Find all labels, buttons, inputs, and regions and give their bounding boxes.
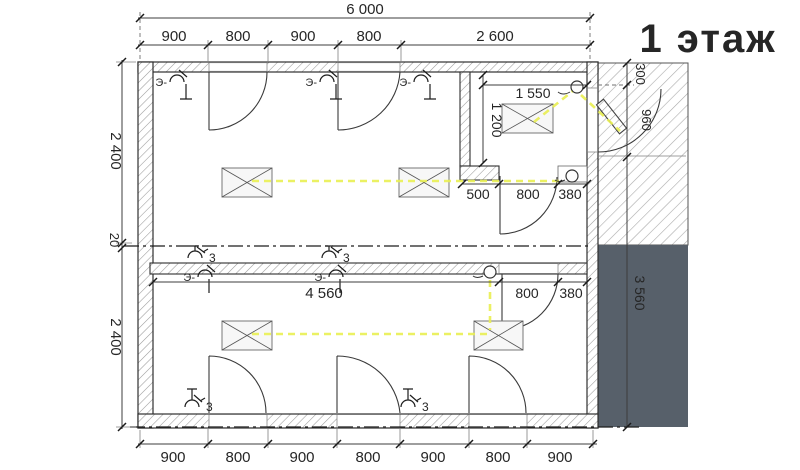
- dim-top-seg: 800: [356, 28, 381, 45]
- switch-symbol: Э-: [399, 70, 436, 99]
- ceiling-lights: [222, 104, 553, 350]
- lamp-hook-icon: [473, 276, 483, 278]
- dim-overall-width: 6 000: [346, 1, 384, 18]
- dim-bottom-seg: 900: [420, 449, 445, 466]
- door-top-1: [209, 72, 267, 130]
- opening-middle: [499, 264, 558, 274]
- switch-symbol: 3: [401, 389, 429, 414]
- ceiling-light: [399, 168, 449, 197]
- door-top-2: [338, 72, 400, 130]
- door-bottom-1: [209, 356, 266, 413]
- opening-bottom-1: [209, 415, 267, 428]
- lamp-point-icon: [566, 170, 578, 182]
- switch-symbol: 3: [188, 246, 216, 265]
- door-bottom-2: [337, 356, 400, 413]
- entry-porch-hatch: [598, 63, 688, 245]
- dim-tambour-depth: 1 200: [489, 102, 505, 137]
- wall-tambour-bottom: [460, 166, 499, 180]
- dim-entry-step: 800: [516, 186, 540, 202]
- dim-tambour-width: 1 550: [515, 85, 550, 101]
- switch-circuit-label: 3: [422, 400, 429, 414]
- ceiling-light: [502, 104, 553, 133]
- dim-right-side: 3 560: [632, 275, 648, 310]
- switch-circuit-label: 3: [206, 400, 213, 414]
- floor-plan-canvas: Э- Э- Э- 3 3 Э- Э- 3: [0, 0, 800, 470]
- switch-symbol: 3: [322, 246, 350, 265]
- lamp-hook-icon: [558, 92, 570, 94]
- dim-left-upper: 2 400: [107, 132, 124, 170]
- lamp-point-icon: [571, 81, 583, 93]
- dim-bottom-seg: 900: [160, 449, 185, 466]
- switch-circuit-label: 3: [209, 251, 216, 265]
- lamp-point-icon: [484, 266, 496, 278]
- wall-tambour-left: [460, 72, 470, 166]
- dim-hall: 380: [559, 285, 583, 301]
- dim-bottom-seg: 900: [289, 449, 314, 466]
- opening-top-1: [209, 63, 267, 72]
- door-bottom-3: [469, 356, 526, 413]
- dim-top-seg: 900: [290, 28, 315, 45]
- dim-top-seg: 900: [161, 28, 186, 45]
- floor-title: 1 этаж: [639, 17, 776, 61]
- door-tambour: [500, 176, 557, 234]
- ceiling-light: [222, 168, 272, 197]
- dim-left-gap: 20: [107, 233, 122, 247]
- extension-lines-dashed: [140, 12, 634, 85]
- dimension-lines: [122, 18, 627, 444]
- switch-symbol: Э-: [155, 70, 192, 99]
- opening-top-2: [338, 63, 400, 72]
- dim-bottom-seg: 800: [485, 449, 510, 466]
- dim-bottom-seg: 800: [225, 449, 250, 466]
- opening-bottom-2: [337, 415, 400, 428]
- dim-top-seg: 2 600: [476, 28, 514, 45]
- dim-bottom-seg: 800: [355, 449, 380, 466]
- dim-right-door: 960: [639, 109, 654, 131]
- switches: Э- Э- Э- 3 3 Э- Э- 3: [155, 70, 436, 414]
- dimension-ticks: [118, 14, 631, 448]
- ceiling-light: [474, 321, 523, 350]
- opening-entry: [588, 88, 598, 152]
- switch-circuit-label: 3: [343, 251, 350, 265]
- switch-label: Э-: [305, 77, 317, 89]
- ceiling-light: [222, 321, 272, 350]
- dim-entry-step: 500: [466, 186, 490, 202]
- switch-symbol: Э-: [305, 70, 342, 99]
- dim-top-seg: 800: [225, 28, 250, 45]
- dim-hall: 4 560: [305, 285, 343, 302]
- floor-plan-svg: Э- Э- Э- 3 3 Э- Э- 3: [0, 0, 800, 470]
- switch-label: Э-: [399, 77, 411, 89]
- dim-hall: 800: [515, 285, 539, 301]
- stair-slab: [598, 245, 688, 427]
- wall-left: [138, 62, 153, 428]
- dim-bottom-seg: 900: [547, 449, 572, 466]
- switch-label: Э-: [155, 77, 167, 89]
- dim-right-offset: 300: [633, 63, 648, 85]
- dim-left-lower: 2 400: [107, 318, 124, 356]
- opening-bottom-3: [469, 415, 527, 428]
- dim-entry-step: 380: [558, 186, 582, 202]
